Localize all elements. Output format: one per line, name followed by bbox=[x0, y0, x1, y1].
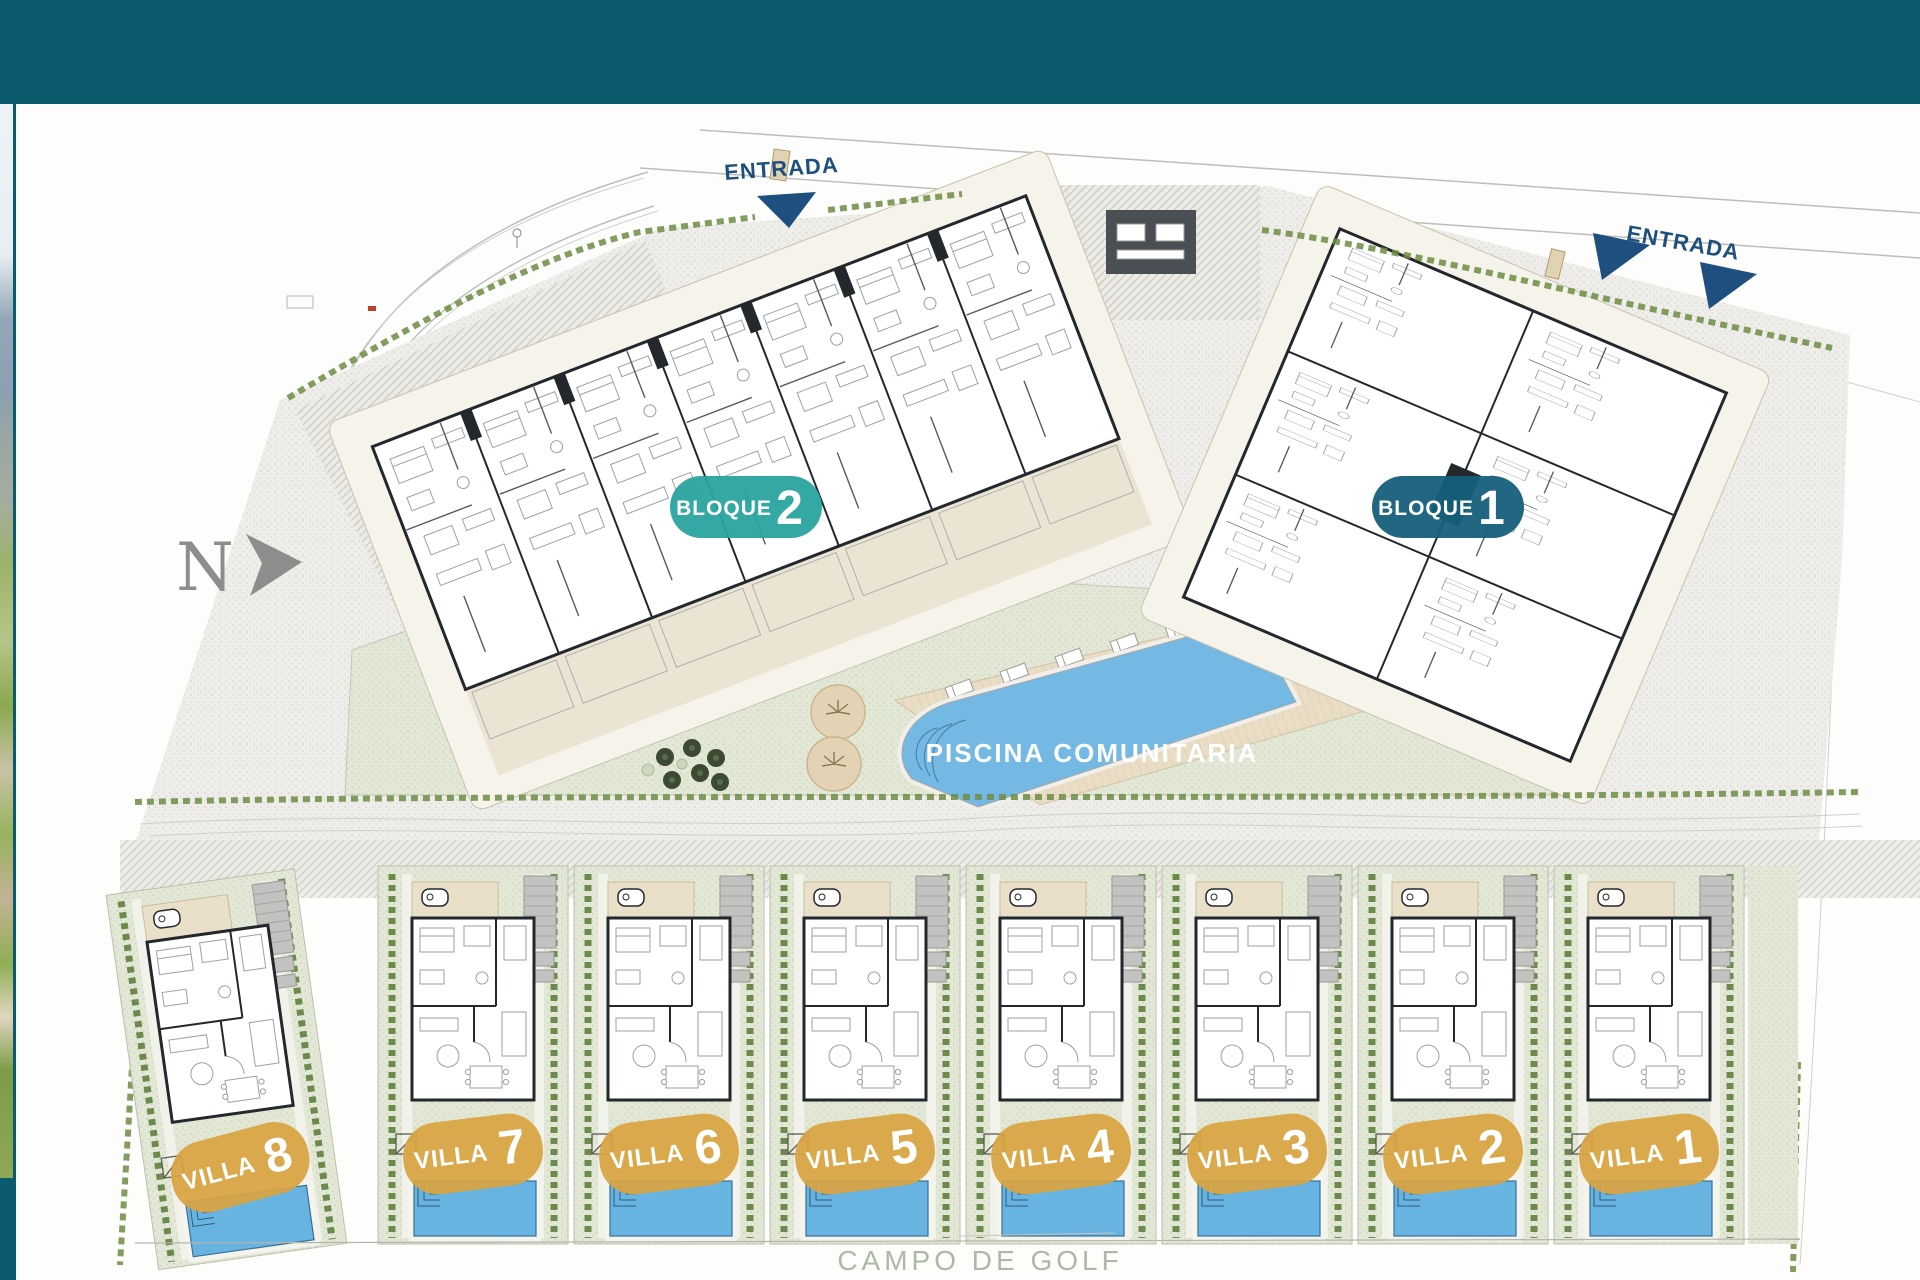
bloque-1-number: 1 bbox=[1478, 482, 1506, 535]
villa-5: VILLA 5 bbox=[770, 866, 960, 1244]
villa-2: VILLA 2 bbox=[1358, 866, 1548, 1244]
north-label: N bbox=[176, 529, 234, 606]
villa-7: VILLA 7 bbox=[378, 866, 568, 1244]
villa-4: VILLA 4 bbox=[966, 866, 1156, 1244]
entrance-pergola bbox=[1106, 210, 1196, 274]
bloque-1-label: BLOQUE bbox=[1378, 497, 1474, 520]
left-photo-strip bbox=[0, 104, 16, 1280]
golf-course-label: CAMPO DE GOLF bbox=[837, 1245, 1122, 1276]
bloque-2-label: BLOQUE bbox=[676, 497, 772, 520]
bloque-1-badge: BLOQUE 1 bbox=[1372, 476, 1524, 538]
road-marker bbox=[368, 306, 376, 311]
bloque-2-number: 2 bbox=[776, 482, 804, 535]
site-plan-canvas: PISCINA COMUNITARIA bbox=[0, 0, 1920, 1280]
community-pool-label: PISCINA COMUNITARIA bbox=[926, 738, 1259, 768]
left-divider-line bbox=[13, 104, 16, 1280]
site-plan-page: PISCINA COMUNITARIA bbox=[0, 0, 1920, 1280]
side-garden bbox=[1748, 866, 1798, 1244]
villa-1: VILLA 1 bbox=[1554, 866, 1744, 1244]
villa-3: VILLA 3 bbox=[1162, 866, 1352, 1244]
header-band bbox=[0, 0, 1920, 104]
villa-6: VILLA 6 bbox=[574, 866, 764, 1244]
bloque-2-badge: BLOQUE 2 bbox=[670, 476, 822, 538]
